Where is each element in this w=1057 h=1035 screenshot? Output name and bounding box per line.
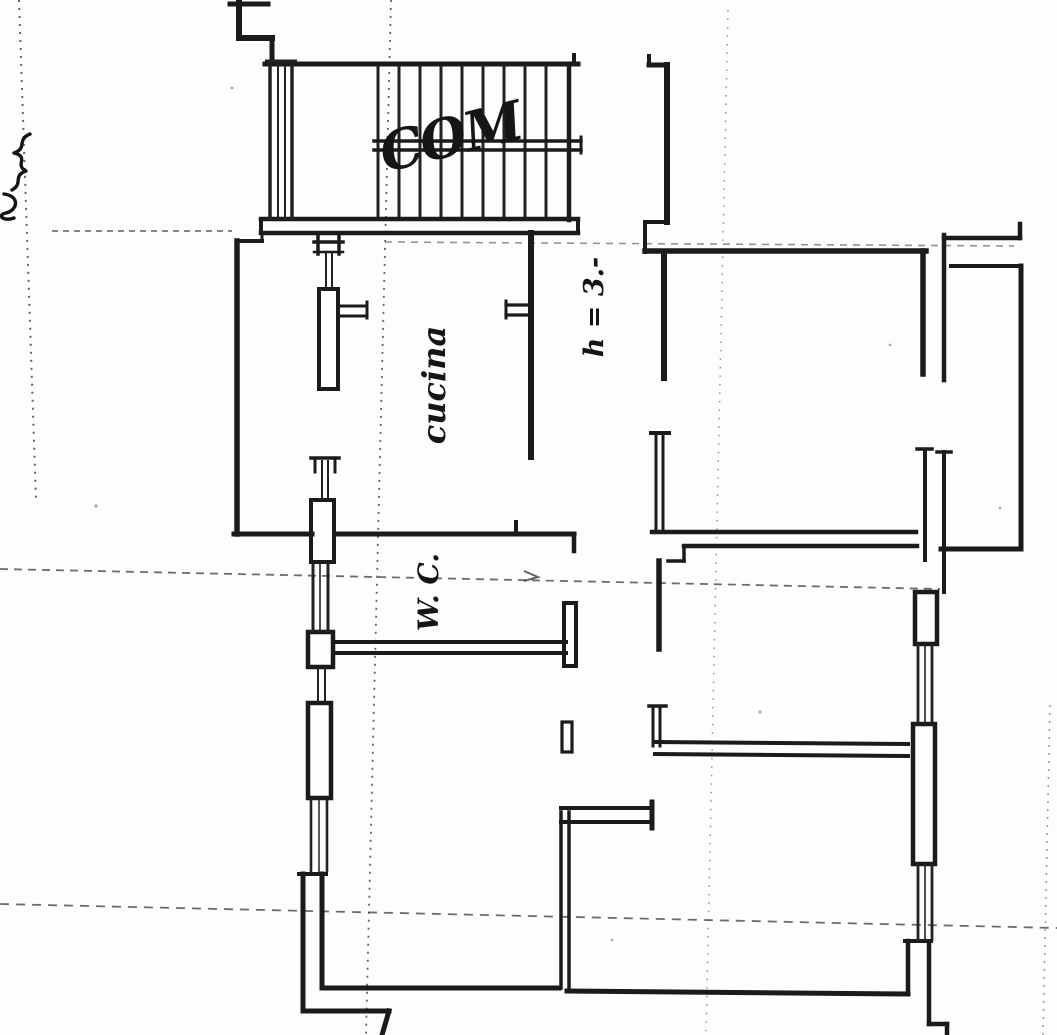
window-top-left: [265, 61, 297, 220]
label-wc: W. C.: [412, 553, 445, 631]
wall-pillar: [913, 724, 935, 864]
wall-pillar: [319, 289, 338, 389]
window-left-3: [313, 562, 328, 632]
guide-arrowhead: [524, 571, 538, 581]
door-jamb: [562, 722, 572, 752]
construction-lines: [0, 0, 1057, 1035]
label-kitchen: cucina: [415, 326, 453, 444]
label-height-note: h = 3.-: [579, 257, 610, 357]
window-left-5: [311, 798, 327, 872]
margin-dotted-line: [19, 0, 36, 500]
wall-pillar: [311, 500, 334, 562]
label-stairwell: COM: [373, 87, 532, 185]
wall-end-bar: [564, 603, 576, 666]
horizontal-guide-middle: [0, 569, 940, 589]
window-right-2: [918, 864, 932, 941]
horizontal-guide-lower: [0, 904, 1057, 928]
window-left-1: [326, 252, 332, 290]
window-left-2: [322, 460, 328, 500]
floor-plan-drawing: COM cucina h = 3.- W. C.: [0, 0, 1057, 1035]
window-right-1: [918, 644, 932, 724]
horizontal-guide-upper: [385, 242, 1014, 246]
wall-block: [915, 592, 937, 644]
floor-plan-scan: COM cucina h = 3.- W. C.: [0, 0, 1057, 1035]
walls: [230, 0, 1021, 1035]
vertical-guide-edge: [1043, 705, 1050, 1035]
window-left-4: [318, 668, 325, 703]
wall-block: [308, 632, 333, 667]
vertical-guide-right: [706, 10, 728, 1035]
scan-noise: [94, 87, 1001, 942]
wall-pillar: [308, 703, 331, 798]
